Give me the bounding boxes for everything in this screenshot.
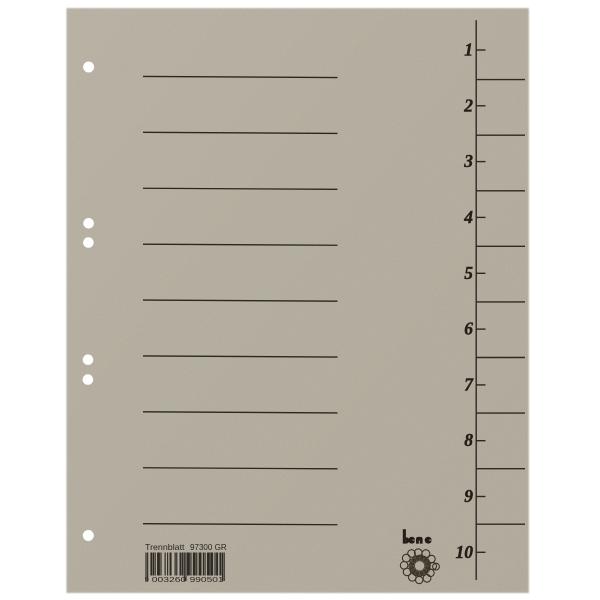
svg-text:10: 10: [456, 542, 474, 562]
svg-text:9: 9: [145, 575, 149, 584]
svg-text:3: 3: [463, 151, 473, 171]
svg-text:5: 5: [464, 263, 473, 283]
svg-text:7: 7: [464, 374, 474, 394]
svg-text:6: 6: [464, 319, 473, 339]
svg-text:Trennblatt: Trennblatt: [145, 542, 185, 552]
svg-text:990501: 990501: [190, 575, 224, 584]
svg-text:1: 1: [464, 40, 473, 60]
svg-text:9: 9: [464, 486, 473, 506]
svg-text:2: 2: [463, 95, 473, 115]
svg-text:4: 4: [463, 207, 473, 227]
svg-text:8: 8: [464, 430, 473, 450]
svg-text:003260: 003260: [152, 575, 187, 584]
svg-text:97300 GR: 97300 GR: [190, 542, 227, 552]
